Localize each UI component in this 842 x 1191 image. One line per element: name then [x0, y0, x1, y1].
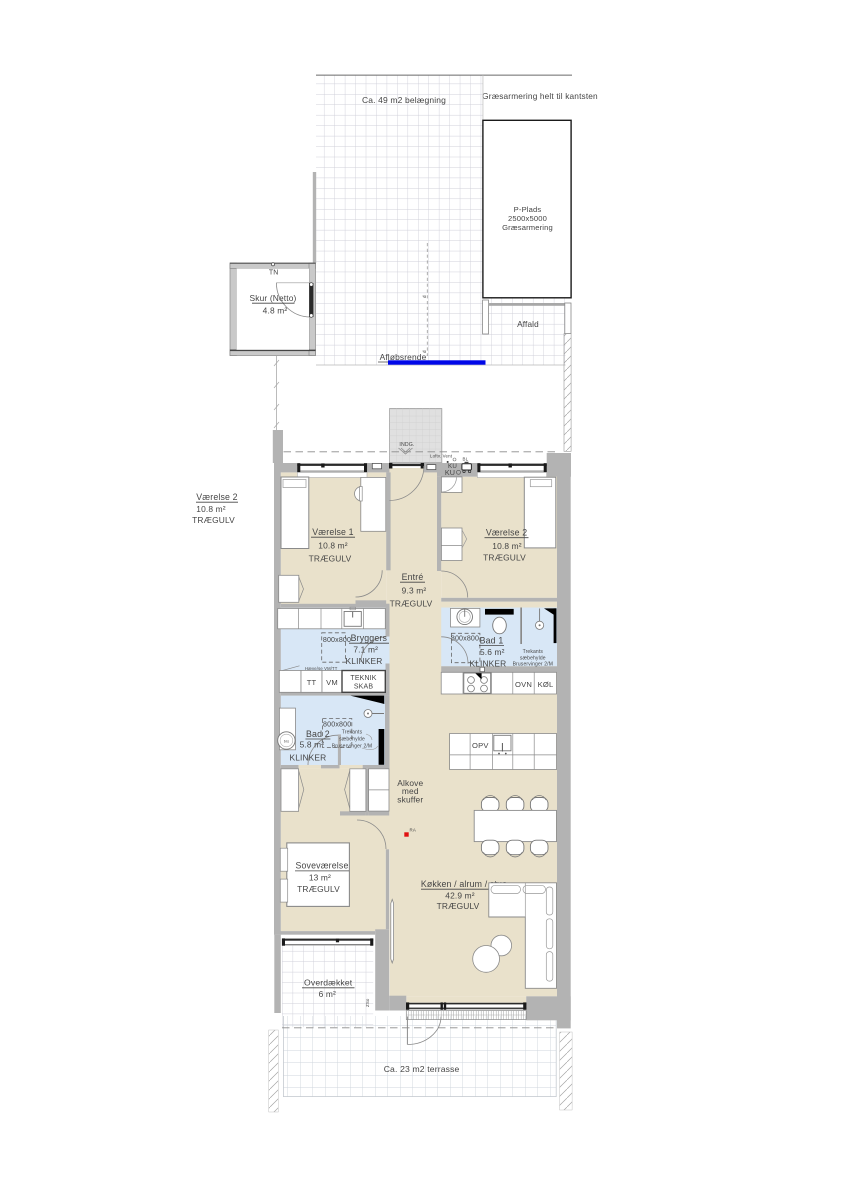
svg-text:Værelse 2: Værelse 2: [486, 528, 527, 538]
svg-text:ZSo: ZSo: [365, 998, 370, 1007]
svg-text:Ca. 49 m2 belægning: Ca. 49 m2 belægning: [362, 95, 446, 105]
svg-text:5.6 m²: 5.6 m²: [480, 647, 505, 657]
svg-text:7.1 m²: 7.1 m²: [353, 645, 378, 655]
svg-text:800x800: 800x800: [323, 721, 351, 729]
svg-text:Værelse 1: Værelse 1: [312, 527, 353, 537]
svg-text:TRÆGULV: TRÆGULV: [437, 901, 480, 911]
svg-text:KØL: KØL: [538, 680, 554, 689]
svg-text:800x800: 800x800: [451, 634, 479, 642]
svg-text:Bad 1: Bad 1: [480, 635, 504, 645]
svg-text:TT: TT: [307, 678, 317, 687]
svg-text:KLINKER: KLINKER: [289, 753, 326, 763]
svg-text:sæbehylde: sæbehylde: [339, 737, 365, 743]
svg-text:TRÆGULV: TRÆGULV: [192, 515, 235, 525]
svg-text:Affald: Affald: [517, 320, 539, 329]
svg-text:2500x5000: 2500x5000: [508, 214, 547, 223]
svg-text:skuffer: skuffer: [397, 794, 423, 804]
svg-text:KU: KU: [445, 468, 455, 477]
svg-text:Græsarmering: Græsarmering: [502, 223, 553, 232]
svg-text:TEKNIK: TEKNIK: [350, 675, 376, 682]
svg-text:P-Plads: P-Plads: [514, 205, 542, 214]
svg-text:42.9 m²: 42.9 m²: [445, 891, 475, 901]
svg-text:10.8 m²: 10.8 m²: [318, 541, 348, 551]
svg-text:Trekants: Trekants: [342, 730, 363, 736]
svg-text:sæbehylde: sæbehylde: [520, 655, 546, 661]
svg-text:KLINKER: KLINKER: [469, 659, 506, 669]
svg-text:TRÆGULV: TRÆGULV: [297, 884, 340, 894]
svg-text:d: d: [422, 295, 427, 298]
svg-text:Bad 2: Bad 2: [306, 729, 330, 739]
svg-text:10.8 m²: 10.8 m²: [492, 541, 522, 551]
svg-text:INDG.: INDG.: [399, 442, 414, 448]
svg-text:Bryggers: Bryggers: [351, 633, 388, 643]
svg-text:OPV: OPV: [472, 741, 489, 750]
svg-text:KLINKER: KLINKER: [346, 656, 383, 666]
svg-text:800x800: 800x800: [323, 636, 351, 644]
svg-text:BL: BL: [463, 457, 469, 462]
svg-text:Trekants: Trekants: [523, 649, 544, 655]
svg-text:TRÆGULV: TRÆGULV: [483, 553, 526, 563]
svg-text:Soveværelse: Soveværelse: [296, 861, 349, 871]
svg-text:6 m²: 6 m²: [319, 989, 336, 999]
svg-text:VM: VM: [326, 678, 338, 687]
svg-text:Bruservinger 2/M: Bruservinger 2/M: [332, 744, 372, 750]
svg-text:Skur (Netto): Skur (Netto): [250, 293, 297, 303]
svg-text:Ca. 23 m2 terrasse: Ca. 23 m2 terrasse: [384, 1064, 460, 1074]
svg-text:Loftv. Vent: Loftv. Vent: [430, 454, 453, 459]
svg-text:Værelse 2: Værelse 2: [196, 492, 237, 502]
svg-text:Overdækket: Overdækket: [304, 978, 353, 988]
svg-text:Bruservinger 2/M: Bruservinger 2/M: [513, 662, 553, 668]
svg-text:brs: brs: [284, 740, 289, 744]
svg-text:Græsarmering helt til kantsten: Græsarmering helt til kantsten: [482, 91, 598, 101]
svg-text:5.8 m²: 5.8 m²: [300, 740, 325, 750]
svg-text:TRÆGULV: TRÆGULV: [309, 554, 352, 564]
svg-text:Entré: Entré: [402, 572, 424, 582]
svg-text:9.3 m²: 9.3 m²: [402, 586, 427, 596]
svg-text:RA: RA: [410, 828, 416, 833]
svg-text:13 m²: 13 m²: [309, 872, 331, 882]
svg-text:10.8 m²: 10.8 m²: [196, 504, 226, 514]
svg-text:OVN: OVN: [515, 680, 532, 689]
svg-text:TRÆGULV: TRÆGULV: [390, 599, 433, 609]
svg-text:SKAB: SKAB: [354, 684, 373, 691]
svg-text:TN: TN: [269, 270, 279, 277]
svg-text:4.8 m²: 4.8 m²: [263, 306, 288, 316]
